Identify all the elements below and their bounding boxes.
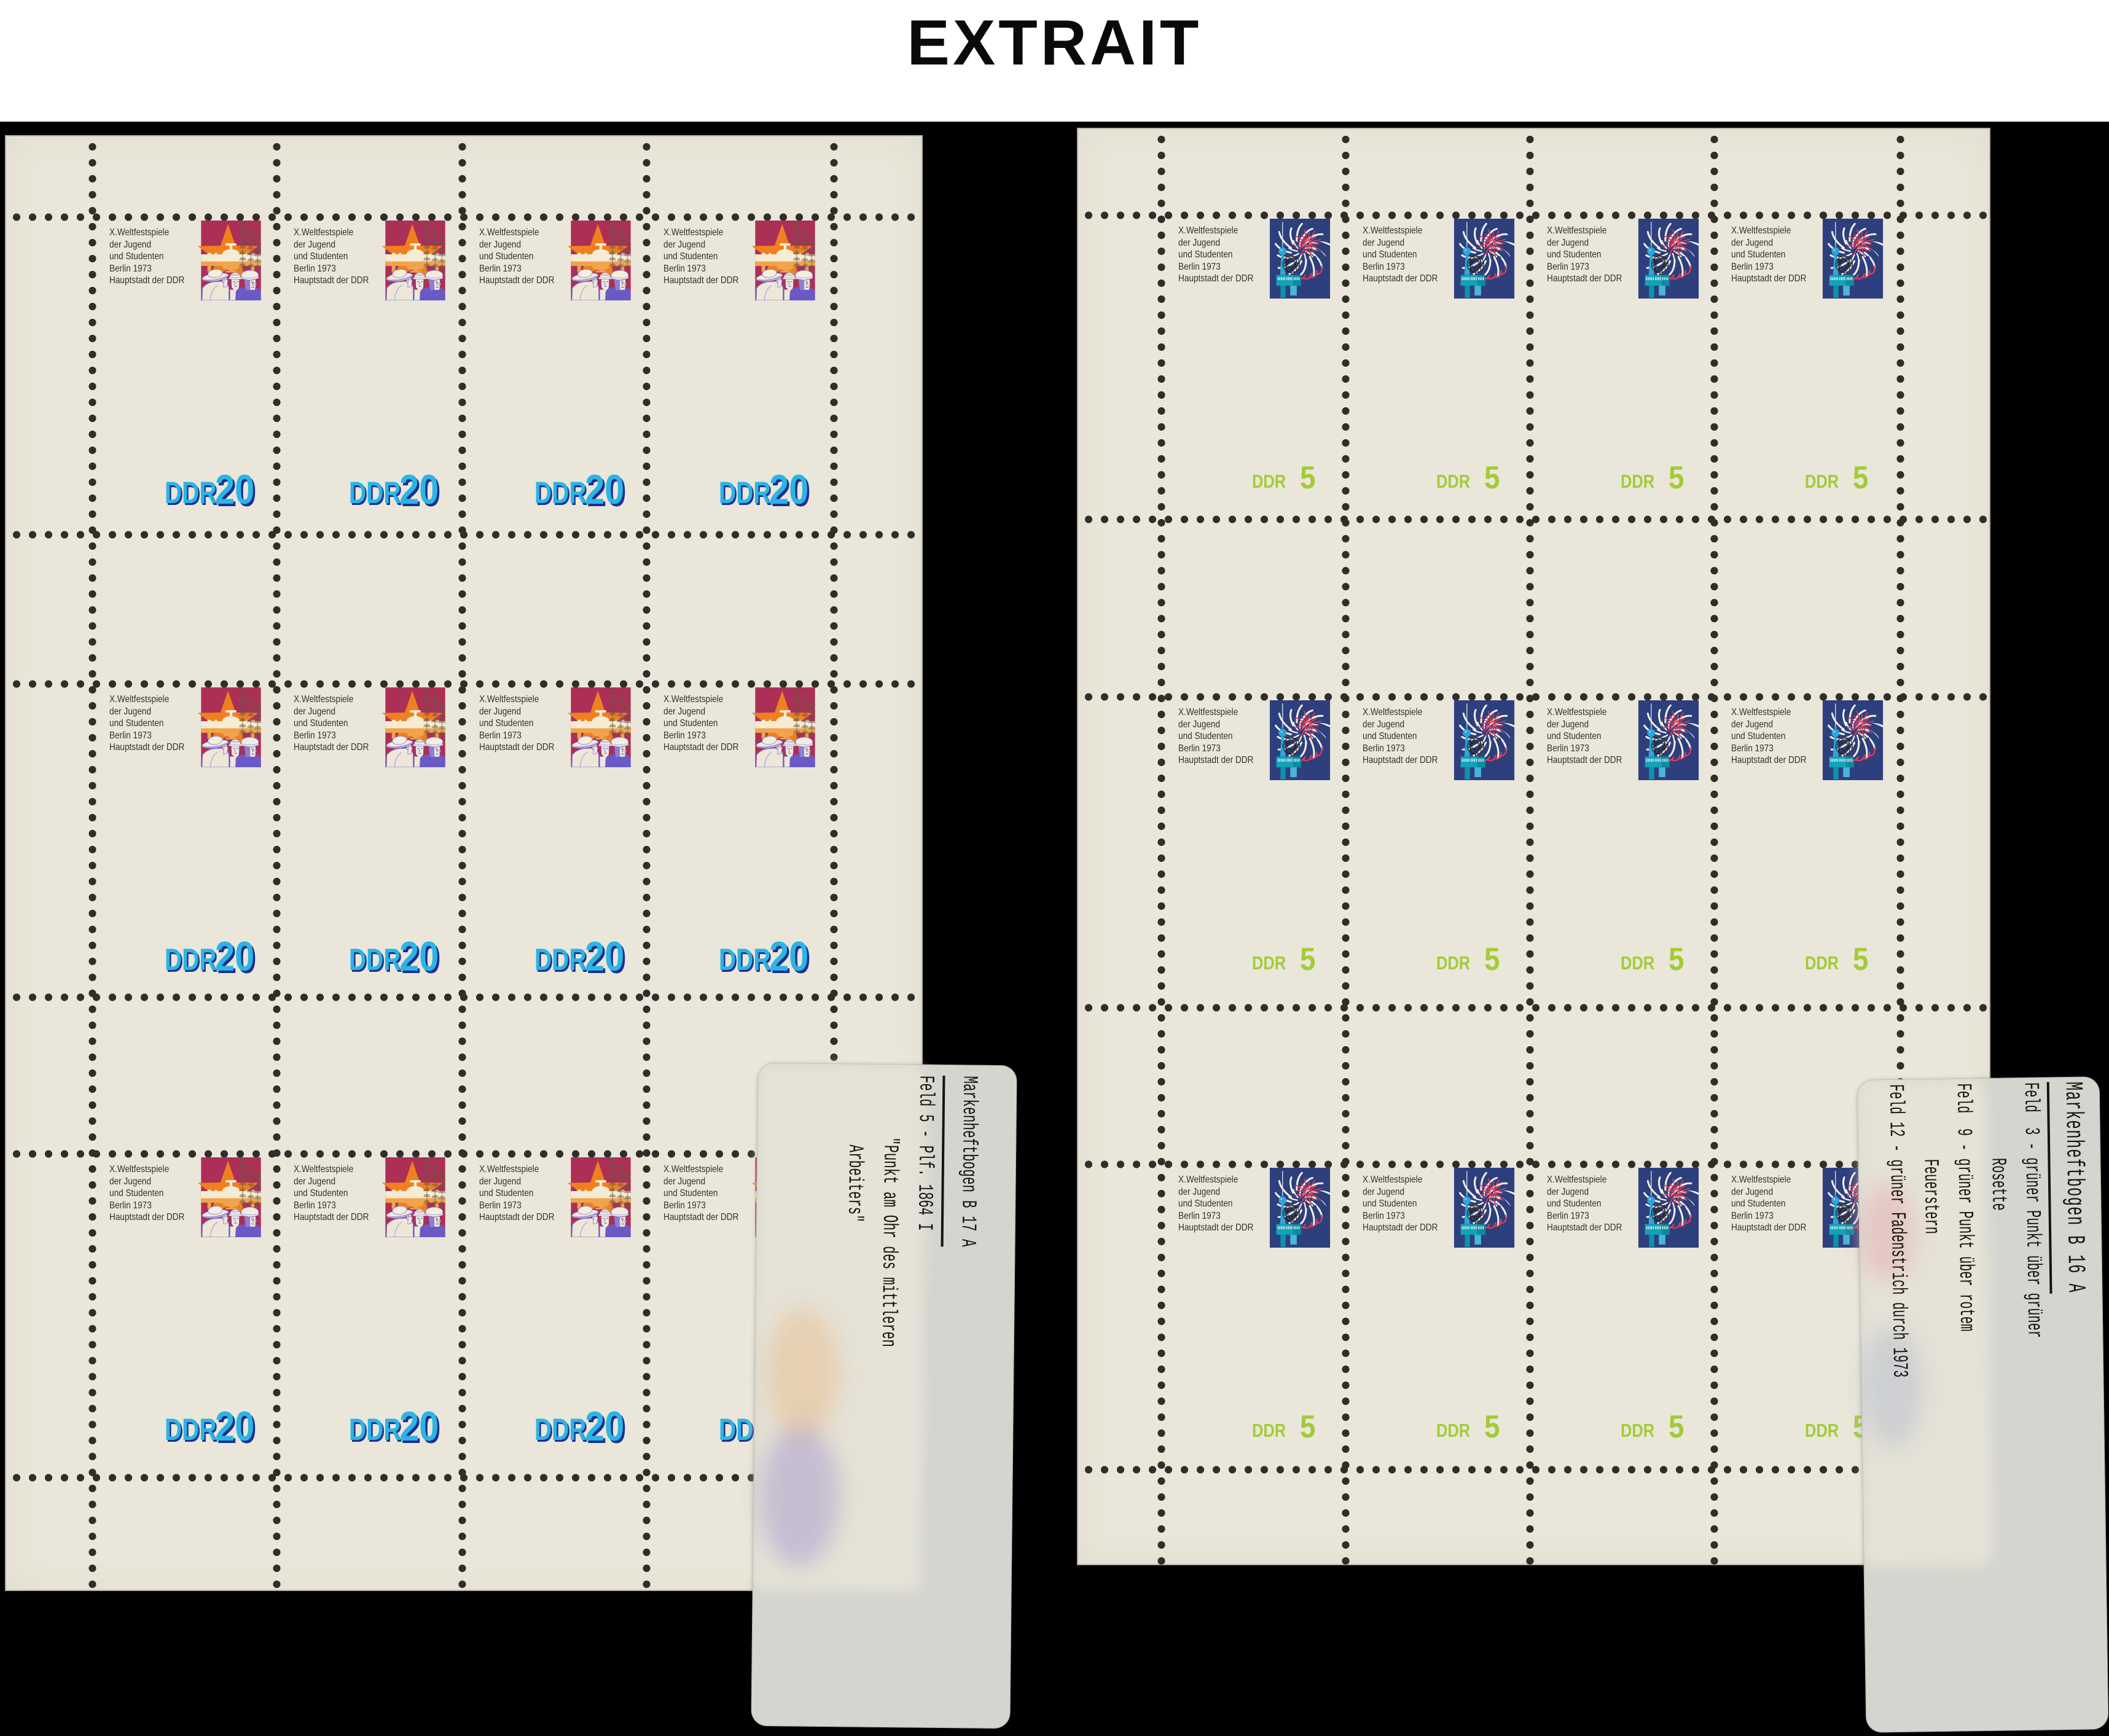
stamp-picture: DDR 20 — [661, 765, 822, 980]
stamp-header-line: Hauptstadt der DDR — [1731, 273, 1806, 285]
stamp-face-value: 5 — [1484, 944, 1500, 976]
stamp-header-line: und Studenten — [479, 1187, 554, 1200]
label-line: Feld 5 - Plf. 1864 I — [903, 1075, 943, 1533]
festival-flower-emblem-icon — [1442, 1168, 1526, 1248]
stamp-header-text: X.Weltfestspieleder Jugendund StudentenB… — [1731, 706, 1806, 767]
stamp-header-line: X.Weltfestspiele — [1178, 1174, 1253, 1186]
stamp-header-line: Berlin 1973 — [1363, 261, 1438, 273]
stamp-header-line: Hauptstadt der DDR — [1363, 1222, 1438, 1234]
stamp-header-line: der Jugend — [479, 239, 554, 251]
festival-flower-emblem-icon — [189, 687, 273, 767]
stamp-header-line: Berlin 1973 — [294, 1200, 369, 1212]
stamp-picture: DDR 20 — [661, 298, 822, 513]
festival-flower-emblem-icon — [1442, 219, 1526, 299]
stamp-header-line: und Studenten — [1547, 249, 1622, 261]
stamp-country: DDR — [719, 477, 770, 508]
stamp-header-text: X.Weltfestspieleder Jugendund StudentenB… — [109, 694, 184, 754]
festival-flower-emblem-icon — [1442, 700, 1526, 780]
stamp-header-line: und Studenten — [1731, 730, 1806, 743]
perforation-line-vertical — [1342, 128, 1350, 1565]
stamp-country: DDR — [349, 477, 401, 508]
label-line: "Punkt am Ohr des mittleren — [868, 1075, 908, 1533]
stamp-header-line: der Jugend — [479, 1176, 554, 1188]
stamp-header-line: X.Weltfestspiele — [1731, 706, 1806, 719]
stamp-header-line: der Jugend — [109, 1176, 184, 1188]
stamp-header-line: Hauptstadt der DDR — [479, 741, 554, 754]
perforation-line-vertical — [643, 135, 651, 1591]
perforation-line-horizontal — [1077, 1466, 1990, 1474]
annotation-label-b16a: Markenheftbogen B 16 AFeld 3 - grüner Pu… — [1857, 1076, 2109, 1732]
stamp-picture: DDR 20 — [107, 1235, 268, 1450]
stamp-picture: DDR 20 — [477, 765, 638, 980]
stamp-header-line: Hauptstadt der DDR — [109, 741, 184, 754]
stamp-face-value: 20 — [769, 469, 808, 510]
festival-flower-emblem-icon — [743, 687, 827, 767]
stamp-country: DDR — [1805, 1421, 1839, 1440]
festival-flower-emblem-icon — [374, 1157, 457, 1237]
stamp-header-line: X.Weltfestspiele — [479, 1163, 554, 1176]
stamp-header-text: X.Weltfestspieleder Jugendund StudentenB… — [1178, 225, 1253, 285]
stamp-header-text: X.Weltfestspieleder Jugendund StudentenB… — [479, 694, 554, 754]
stamp-country: DDR — [534, 944, 586, 975]
stamp-face-value: 5 — [1484, 1411, 1500, 1443]
annotation-label-b17a: Markenheftbogen B 17 AFeld 5 - Plf. 1864… — [751, 1063, 1017, 1729]
stamp-header-line: Hauptstadt der DDR — [1547, 1222, 1622, 1234]
stamp-header-text: X.Weltfestspieleder Jugendund StudentenB… — [294, 694, 369, 754]
stamp-picture: DDR 20 — [291, 298, 452, 513]
stamp-header-line: Hauptstadt der DDR — [294, 741, 369, 754]
label-line: Feld 3 - grüner Punkt über grüner — [2013, 1082, 2053, 1525]
stamp-header-line: und Studenten — [1731, 249, 1806, 261]
stamp-header-line: Hauptstadt der DDR — [1178, 754, 1253, 767]
stamp-header-line: und Studenten — [663, 251, 738, 263]
festival-flower-emblem-icon — [1258, 700, 1342, 780]
stamp-header-line: und Studenten — [109, 1187, 184, 1200]
stamp-header-line: Hauptstadt der DDR — [1363, 273, 1438, 285]
festival-flower-emblem-icon — [559, 221, 643, 300]
stamp-header-line: und Studenten — [1178, 730, 1253, 743]
stamp-header-line: Hauptstadt der DDR — [109, 275, 184, 287]
stamp-country: DDR — [534, 477, 586, 508]
festival-flower-emblem-icon — [1811, 219, 1895, 299]
stamp-header-line: und Studenten — [1363, 730, 1438, 743]
stamp-header-line: und Studenten — [109, 717, 184, 730]
stamp-country: DDR — [1252, 472, 1286, 491]
stamp-header-line: X.Weltfestspiele — [1363, 225, 1438, 237]
stamp-country: DDR — [1436, 472, 1470, 491]
stamp-header-line: Hauptstadt der DDR — [1731, 754, 1806, 767]
stamp-header-text: X.Weltfestspieleder Jugendund StudentenB… — [479, 1163, 554, 1224]
stamp-header-line: der Jugend — [663, 239, 738, 251]
stamp-header-line: und Studenten — [479, 251, 554, 263]
album-page: EXTRAIT X.Weltfestspieleder Jugendund St… — [0, 0, 2109, 1736]
stamp-header-line: der Jugend — [1178, 719, 1253, 731]
stamp-header-text: X.Weltfestspieleder Jugendund StudentenB… — [1547, 706, 1622, 767]
stamp-header-line: der Jugend — [109, 706, 184, 718]
stamp-country: DDR — [1805, 472, 1839, 491]
label-line: Feld 12 - grüner Fadenstrich durch 1973 — [1878, 1084, 1918, 1527]
stamp-header-line: und Studenten — [1178, 1198, 1253, 1210]
stamp-country: DDR — [349, 944, 401, 975]
stamp-face-value: 5 — [1853, 462, 1868, 494]
stamp-header-line: der Jugend — [1363, 719, 1438, 731]
stamp-picture: DDR 5 — [1173, 290, 1332, 501]
stamp-country: DDR — [719, 944, 770, 975]
stamp-header-text: X.Weltfestspieleder Jugendund StudentenB… — [294, 1163, 369, 1224]
stamp-header-line: X.Weltfestspiele — [1178, 706, 1253, 719]
stamp-header-text: X.Weltfestspieleder Jugendund StudentenB… — [1547, 225, 1622, 285]
stamp-header-line: Berlin 1973 — [1363, 1210, 1438, 1222]
stamp-face-value: 20 — [399, 469, 439, 510]
stamp-header-line: Berlin 1973 — [294, 263, 369, 275]
stamp-header-text: X.Weltfestspieleder Jugendund StudentenB… — [479, 227, 554, 287]
stamp-face-value: 5 — [1484, 462, 1500, 494]
stamp-face-value: 20 — [215, 1406, 254, 1447]
perforation-line-vertical — [458, 135, 466, 1591]
stamp-header-line: X.Weltfestspiele — [1547, 225, 1622, 237]
stamp-picture: DDR 20 — [107, 765, 268, 980]
stamp-header-text: X.Weltfestspieleder Jugendund StudentenB… — [1178, 1174, 1253, 1234]
festival-flower-emblem-icon — [374, 687, 457, 767]
stamp-header-line: Berlin 1973 — [1731, 261, 1806, 273]
stamp-header-line: X.Weltfestspiele — [1547, 1174, 1622, 1186]
stamp-header-line: X.Weltfestspiele — [479, 694, 554, 706]
stamp-face-value: 5 — [1853, 944, 1868, 976]
stamp-picture: DDR 5 — [1358, 290, 1517, 501]
stamp-header-line: Berlin 1973 — [1178, 743, 1253, 755]
stamp-header-line: X.Weltfestspiele — [1363, 706, 1438, 719]
stamp-header-text: X.Weltfestspieleder Jugendund StudentenB… — [109, 227, 184, 287]
stamp-country: DDR — [534, 1414, 586, 1445]
stamp-header-line: X.Weltfestspiele — [1363, 1174, 1438, 1186]
stamp-header-text: X.Weltfestspieleder Jugendund StudentenB… — [294, 227, 369, 287]
stamp-picture: DDR 5 — [1173, 772, 1332, 982]
stamp-country: DDR — [1252, 953, 1286, 972]
stamp-picture: DDR 5 — [1726, 772, 1885, 982]
stamp-header-line: Berlin 1973 — [1731, 743, 1806, 755]
stamp-header-line: der Jugend — [663, 706, 738, 718]
stamp-header-line: X.Weltfestspiele — [1178, 225, 1253, 237]
stamp-country: DDR — [1621, 953, 1654, 972]
stamp-header-line: Hauptstadt der DDR — [1363, 754, 1438, 767]
stamp-face-value: 5 — [1300, 944, 1315, 976]
stamp-header-text: X.Weltfestspieleder Jugendund StudentenB… — [1731, 225, 1806, 285]
stamp-country: DDR — [1436, 1421, 1470, 1440]
stamp-country: DDR — [165, 1414, 216, 1445]
festival-flower-emblem-icon — [743, 221, 827, 300]
stamp-header-line: Hauptstadt der DDR — [1731, 1222, 1806, 1234]
header-band: EXTRAIT — [0, 0, 2109, 122]
stamp-header-line: X.Weltfestspiele — [109, 227, 184, 239]
stamp-country: DDR — [1436, 953, 1470, 972]
stamp-header-text: X.Weltfestspieleder Jugendund StudentenB… — [1363, 706, 1438, 767]
stamp-header-line: der Jugend — [1178, 1186, 1253, 1198]
stamp-country: DDR — [1621, 472, 1654, 491]
stamp-header-line: und Studenten — [663, 1187, 738, 1200]
stamp-header-text: X.Weltfestspieleder Jugendund StudentenB… — [663, 1163, 738, 1224]
stamp-header-line: Hauptstadt der DDR — [1547, 754, 1622, 767]
stamp-country: DDR — [1805, 953, 1839, 972]
stamp-header-line: und Studenten — [294, 1187, 369, 1200]
stamp-header-line: Hauptstadt der DDR — [663, 741, 738, 754]
stamp-face-value: 20 — [585, 469, 624, 510]
stamp-header-line: der Jugend — [663, 1176, 738, 1188]
stamp-country: DDR — [349, 1414, 401, 1445]
stamp-header-text: X.Weltfestspieleder Jugendund StudentenB… — [663, 694, 738, 754]
stamp-face-value: 20 — [585, 936, 624, 977]
stamp-header-line: und Studenten — [479, 717, 554, 730]
stamp-header-line: der Jugend — [294, 706, 369, 718]
stamp-header-line: und Studenten — [1731, 1198, 1806, 1210]
stamp-header-line: X.Weltfestspiele — [663, 227, 738, 239]
stamp-header-line: Hauptstadt der DDR — [479, 1211, 554, 1224]
stamp-face-value: 5 — [1669, 944, 1684, 976]
stamp-country: DDR — [165, 477, 216, 508]
stamp-header-line: der Jugend — [1547, 719, 1622, 731]
label-title: Markenheftbogen B 16 A — [2047, 1082, 2092, 1294]
stamp-header-line: X.Weltfestspiele — [294, 227, 369, 239]
stamp-header-line: Berlin 1973 — [1731, 1210, 1806, 1222]
perforation-line-horizontal — [5, 993, 923, 1001]
festival-flower-emblem-icon — [374, 221, 457, 300]
stamp-face-value: 5 — [1669, 462, 1684, 494]
stamp-header-line: Berlin 1973 — [294, 730, 369, 742]
stamp-header-line: Berlin 1973 — [1547, 743, 1622, 755]
stamp-header-line: Berlin 1973 — [663, 1200, 738, 1212]
stamp-picture: DDR 20 — [291, 765, 452, 980]
festival-flower-emblem-icon — [189, 221, 273, 300]
perforation-line-horizontal — [1077, 1004, 1990, 1012]
stamp-header-line: der Jugend — [1731, 719, 1806, 731]
stamp-header-line: und Studenten — [1363, 1198, 1438, 1210]
stamp-header-line: und Studenten — [1547, 1198, 1622, 1210]
stamp-header-line: X.Weltfestspiele — [479, 227, 554, 239]
stamp-header-text: X.Weltfestspieleder Jugendund StudentenB… — [1363, 1174, 1438, 1234]
stamp-header-line: X.Weltfestspiele — [1547, 706, 1622, 719]
stamp-header-line: X.Weltfestspiele — [1731, 225, 1806, 237]
label-line: Markenheftbogen B 16 A — [2047, 1082, 2095, 1525]
stamp-header-line: X.Weltfestspiele — [294, 694, 369, 706]
stamp-picture: DDR 5 — [1542, 1239, 1701, 1450]
perforation-line-vertical — [88, 135, 96, 1591]
stamp-header-line: Berlin 1973 — [479, 730, 554, 742]
stamp-face-value: 20 — [399, 1406, 439, 1447]
stamp-picture: DDR 5 — [1542, 290, 1701, 501]
stamp-picture: DDR 5 — [1173, 1239, 1332, 1450]
stamp-header-line: X.Weltfestspiele — [294, 1163, 369, 1176]
stamp-header-text: X.Weltfestspieleder Jugendund StudentenB… — [663, 227, 738, 287]
stamp-header-line: Hauptstadt der DDR — [479, 275, 554, 287]
stamp-country: DDR — [165, 944, 216, 975]
stamp-header-text: X.Weltfestspieleder Jugendund StudentenB… — [1363, 225, 1438, 285]
festival-flower-emblem-icon — [559, 687, 643, 767]
stamp-header-text: X.Weltfestspieleder Jugendund StudentenB… — [1547, 1174, 1622, 1234]
stamp-header-line: Berlin 1973 — [479, 1200, 554, 1212]
sheet-right-5pf-booklet-pane: X.Weltfestspieleder Jugendund StudentenB… — [1077, 128, 1990, 1565]
stamp-header-text: X.Weltfestspieleder Jugendund StudentenB… — [109, 1163, 184, 1224]
stamp-header-text: X.Weltfestspieleder Jugendund StudentenB… — [1178, 706, 1253, 767]
stamp-header-line: der Jugend — [1731, 1186, 1806, 1198]
festival-flower-emblem-icon — [559, 1157, 643, 1237]
stamp-header-line: Berlin 1973 — [1363, 743, 1438, 755]
stamp-header-line: der Jugend — [1178, 237, 1253, 249]
perforation-line-vertical — [1526, 128, 1534, 1565]
stamp-header-line: der Jugend — [294, 239, 369, 251]
stamp-header-text: X.Weltfestspieleder Jugendund StudentenB… — [1731, 1174, 1806, 1234]
stamp-header-line: der Jugend — [1547, 237, 1622, 249]
label-line: Feld 9 - grüner Punkt über rotem — [1946, 1083, 1986, 1526]
stamp-header-line: Berlin 1973 — [1547, 1210, 1622, 1222]
stamp-header-line: Berlin 1973 — [479, 263, 554, 275]
label-text-block: Markenheftbogen B 17 AFeld 5 - Plf. 1864… — [833, 1074, 987, 1533]
stamp-picture: DDR 20 — [477, 298, 638, 513]
stamp-header-line: Berlin 1973 — [109, 730, 184, 742]
label-line: Markenheftbogen B 17 A — [938, 1076, 987, 1533]
stamp-picture: DDR 5 — [1358, 1239, 1517, 1450]
stamp-header-line: Hauptstadt der DDR — [1178, 1222, 1253, 1234]
stamp-face-value: 20 — [585, 1406, 624, 1447]
stamp-header-line: Hauptstadt der DDR — [1547, 273, 1622, 285]
stamp-picture: DDR 20 — [107, 298, 268, 513]
stamp-header-line: Berlin 1973 — [663, 263, 738, 275]
stamp-header-line: X.Weltfestspiele — [109, 1163, 184, 1176]
stamp-header-line: Hauptstadt der DDR — [663, 275, 738, 287]
stamp-face-value: 20 — [399, 936, 439, 977]
stamp-country: DDR — [1621, 1421, 1654, 1440]
stamp-picture: DDR 5 — [1542, 772, 1701, 982]
stamp-header-line: Hauptstadt der DDR — [1178, 273, 1253, 285]
stamp-header-line: Berlin 1973 — [1178, 1210, 1253, 1222]
stamp-header-line: und Studenten — [663, 717, 738, 730]
stamp-picture: DDR 20 — [291, 1235, 452, 1450]
stamp-header-line: Berlin 1973 — [109, 1200, 184, 1212]
stamp-header-line: X.Weltfestspiele — [663, 1163, 738, 1176]
stamp-face-value: 20 — [215, 469, 254, 510]
perforation-line-horizontal — [5, 531, 923, 539]
stamp-header-line: Berlin 1973 — [109, 263, 184, 275]
stamp-face-value: 5 — [1300, 462, 1315, 494]
perforation-line-horizontal — [1077, 515, 1990, 523]
stamp-header-line: Berlin 1973 — [1547, 261, 1622, 273]
perforation-line-vertical — [1710, 128, 1718, 1565]
page-title: EXTRAIT — [0, 10, 2109, 77]
stamp-header-line: und Studenten — [1363, 249, 1438, 261]
stamp-header-line: Hauptstadt der DDR — [294, 1211, 369, 1224]
stamp-header-line: X.Weltfestspiele — [1731, 1174, 1806, 1186]
stamp-picture: DDR 5 — [1726, 290, 1885, 501]
perforation-line-vertical — [1157, 128, 1165, 1565]
stamp-picture: DDR 20 — [477, 1235, 638, 1450]
stamp-face-value: 20 — [769, 936, 808, 977]
stamp-header-line: Hauptstadt der DDR — [294, 275, 369, 287]
label-line: Arbeiters" — [833, 1074, 873, 1532]
festival-flower-emblem-icon — [1258, 1168, 1342, 1248]
festival-flower-emblem-icon — [189, 1157, 273, 1237]
stamp-header-line: der Jugend — [109, 239, 184, 251]
festival-flower-emblem-icon — [1627, 1168, 1710, 1248]
label-line: Rosette — [1979, 1082, 2019, 1525]
stamp-header-line: der Jugend — [1363, 1186, 1438, 1198]
stamp-face-value: 5 — [1669, 1411, 1684, 1443]
stamp-header-line: der Jugend — [1731, 237, 1806, 249]
stamp-header-line: und Studenten — [294, 717, 369, 730]
stamp-header-line: X.Weltfestspiele — [663, 694, 738, 706]
label-text-block: Markenheftbogen B 16 AFeld 3 - grüner Pu… — [1878, 1082, 2095, 1527]
stamp-header-line: der Jugend — [294, 1176, 369, 1188]
stamp-picture: DDR 5 — [1358, 772, 1517, 982]
stamp-face-value: 5 — [1300, 1411, 1315, 1443]
stamp-header-line: Hauptstadt der DDR — [663, 1211, 738, 1224]
stamp-country: DDR — [1252, 1421, 1286, 1440]
perforation-line-vertical — [273, 135, 281, 1591]
stamp-header-line: der Jugend — [479, 706, 554, 718]
festival-flower-emblem-icon — [1627, 219, 1710, 299]
stamp-header-line: Berlin 1973 — [663, 730, 738, 742]
label-title: Markenheftbogen B 17 A — [941, 1076, 987, 1247]
festival-flower-emblem-icon — [1811, 700, 1895, 780]
stamp-face-value: 20 — [215, 936, 254, 977]
stamp-header-line: und Studenten — [1178, 249, 1253, 261]
festival-flower-emblem-icon — [1258, 219, 1342, 299]
stamp-header-line: der Jugend — [1363, 237, 1438, 249]
stamp-header-line: X.Weltfestspiele — [109, 694, 184, 706]
stamp-header-line: der Jugend — [1547, 1186, 1622, 1198]
stamp-header-line: und Studenten — [1547, 730, 1622, 743]
stamp-header-line: Berlin 1973 — [1178, 261, 1253, 273]
stamp-header-line: und Studenten — [109, 251, 184, 263]
festival-flower-emblem-icon — [1627, 700, 1710, 780]
stamp-header-line: Hauptstadt der DDR — [109, 1211, 184, 1224]
label-line: Feuerstern — [1912, 1084, 1952, 1527]
stamp-header-line: und Studenten — [294, 251, 369, 263]
